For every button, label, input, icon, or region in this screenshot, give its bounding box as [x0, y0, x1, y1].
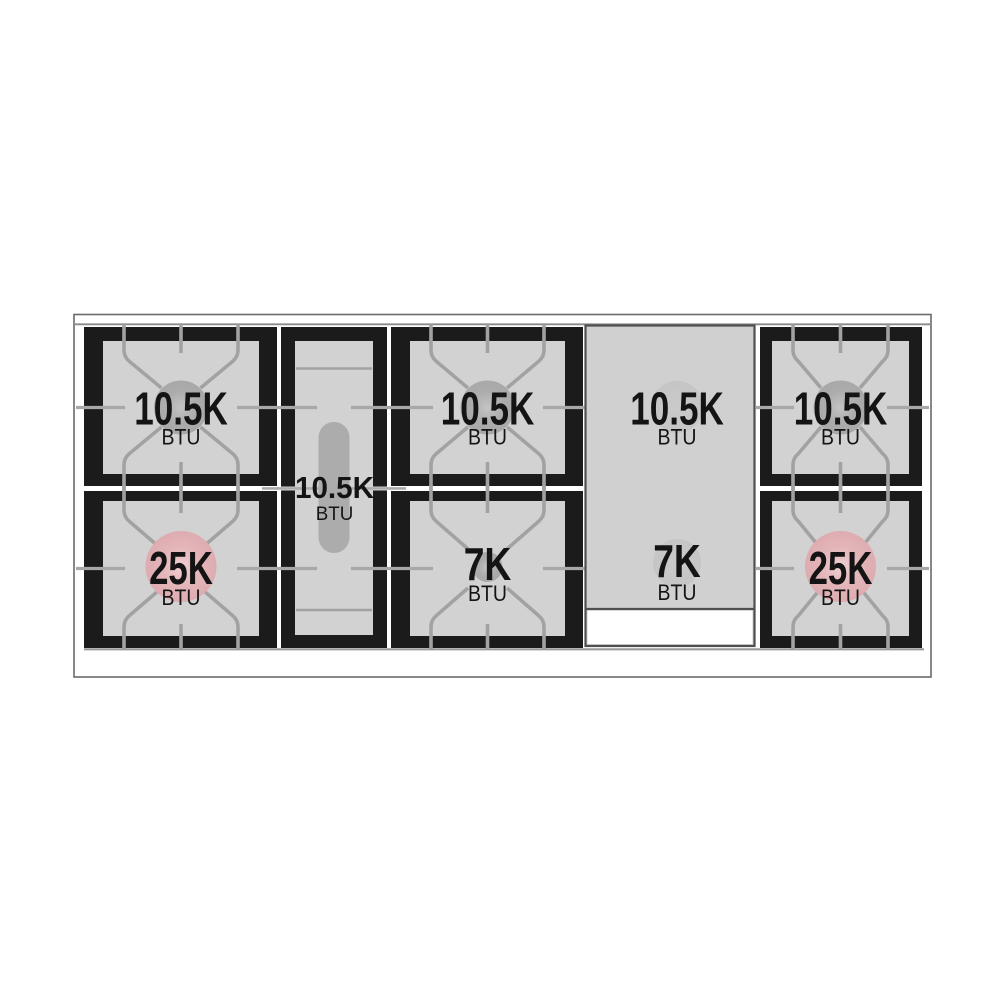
- svg-text:BTU: BTU: [468, 581, 507, 606]
- svg-text:BTU: BTU: [162, 585, 201, 610]
- svg-text:BTU: BTU: [316, 504, 354, 525]
- svg-text:BTU: BTU: [658, 580, 697, 605]
- svg-text:BTU: BTU: [468, 425, 507, 450]
- svg-text:BTU: BTU: [658, 425, 697, 450]
- svg-text:BTU: BTU: [162, 425, 201, 450]
- svg-text:10.5K: 10.5K: [295, 470, 375, 505]
- svg-text:BTU: BTU: [821, 585, 860, 610]
- svg-text:BTU: BTU: [821, 425, 860, 450]
